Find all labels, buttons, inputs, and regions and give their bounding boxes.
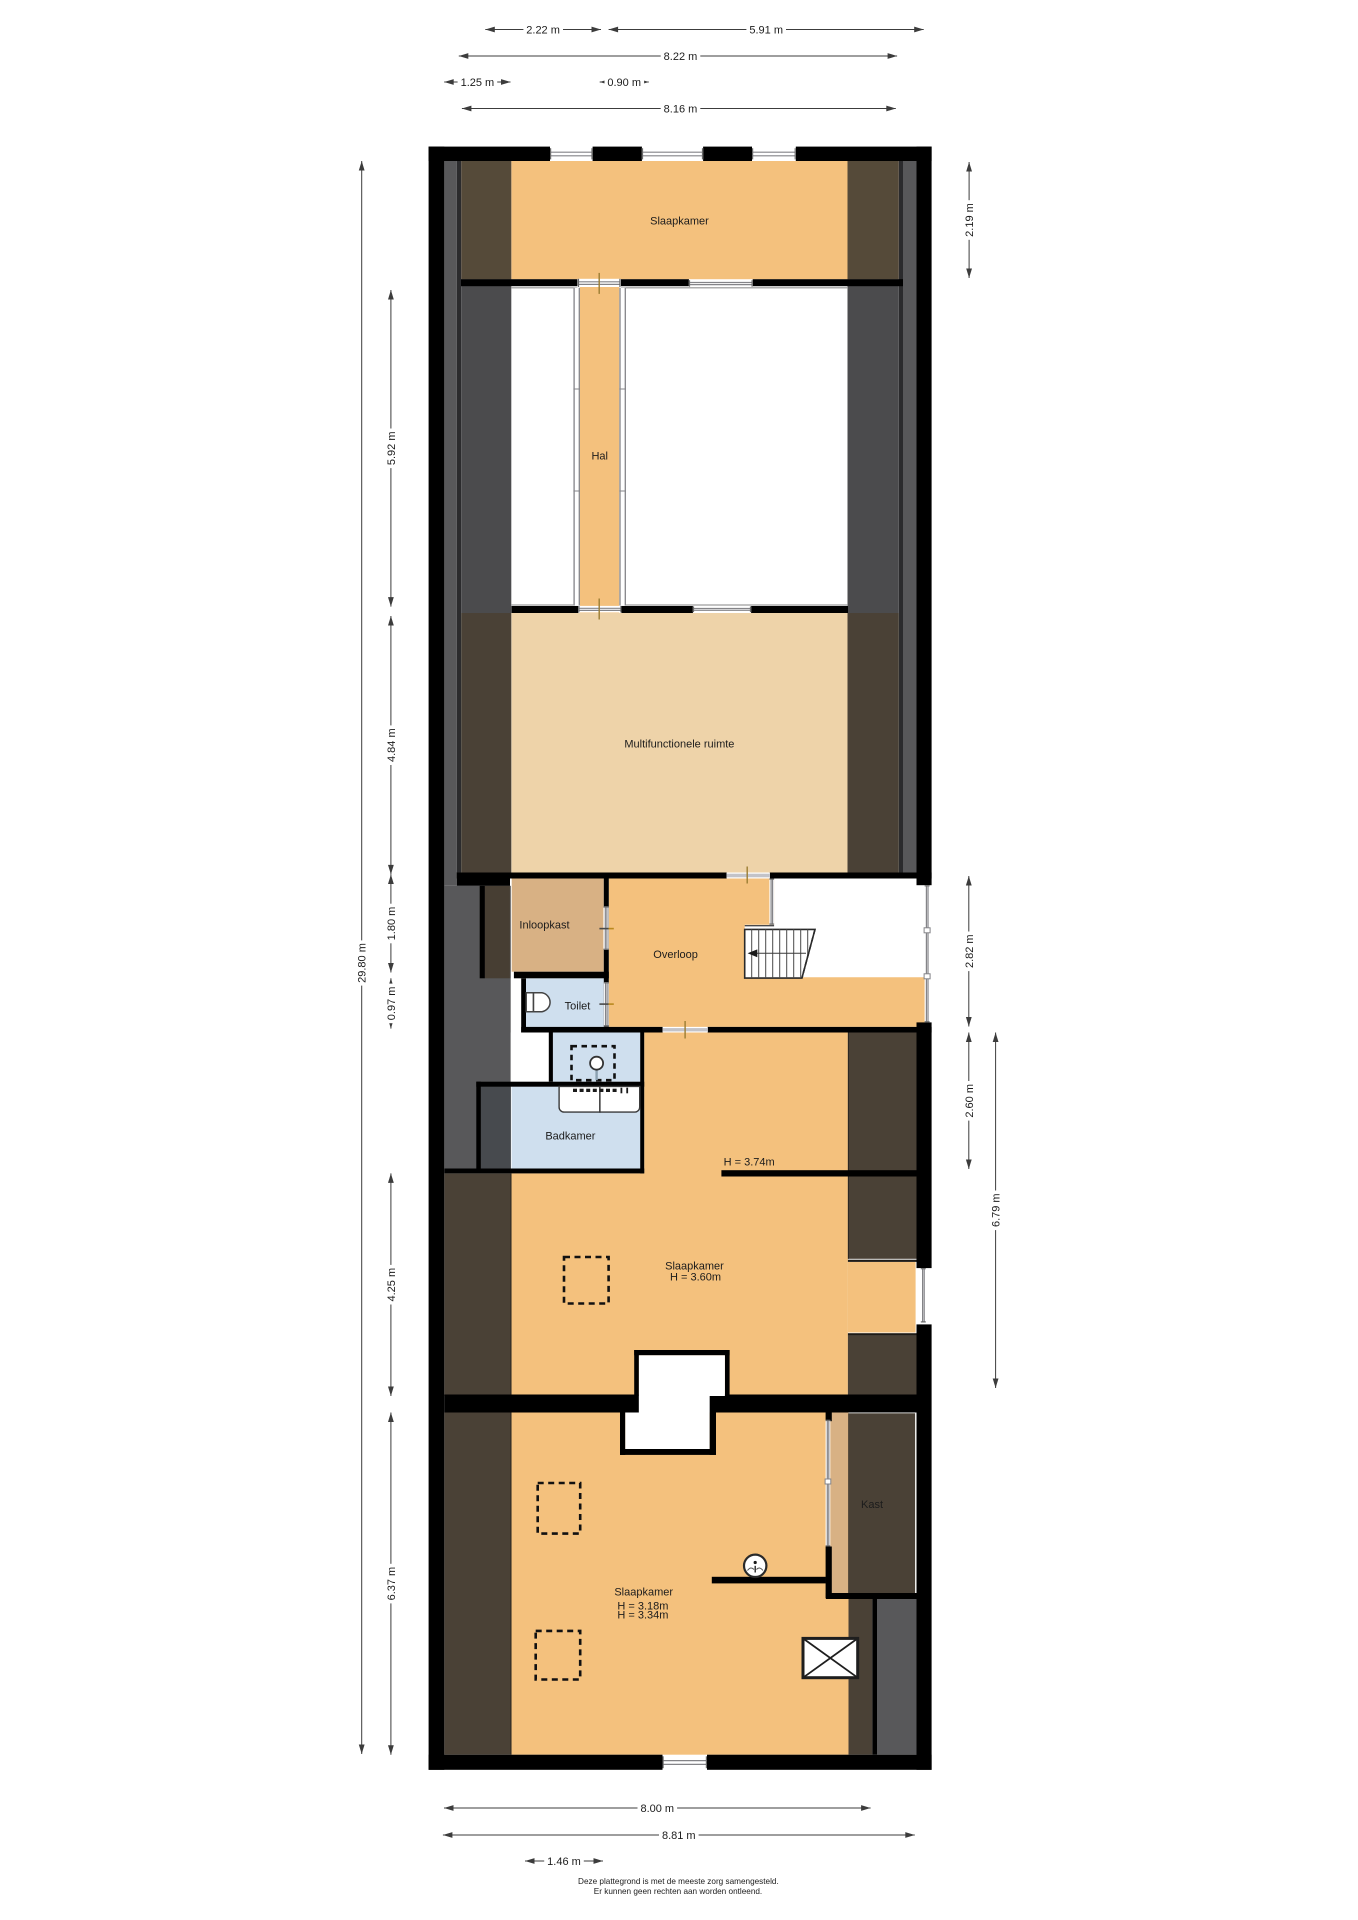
svg-text:0.97 m: 0.97 m <box>386 987 398 1021</box>
svg-text:2.22 m: 2.22 m <box>526 25 560 37</box>
svg-text:H = 3.34m: H = 3.34m <box>617 1610 668 1622</box>
svg-text:2.82 m: 2.82 m <box>964 934 976 968</box>
svg-text:1.46 m: 1.46 m <box>547 1856 581 1868</box>
svg-text:8.81 m: 8.81 m <box>662 1830 696 1842</box>
svg-text:0.90 m: 0.90 m <box>607 77 641 89</box>
svg-text:Inloopkast: Inloopkast <box>519 920 569 932</box>
svg-text:Er kunnen geen rechten aan wor: Er kunnen geen rechten aan worden ontlee… <box>594 1887 762 1896</box>
svg-text:Hal: Hal <box>591 451 608 463</box>
svg-text:Toilet: Toilet <box>565 1001 591 1013</box>
svg-text:2.19 m: 2.19 m <box>964 203 976 237</box>
svg-text:2.60 m: 2.60 m <box>964 1084 976 1118</box>
svg-text:4.25 m: 4.25 m <box>386 1268 398 1302</box>
svg-text:1.25 m: 1.25 m <box>461 77 495 89</box>
svg-text:H = 3.60m: H = 3.60m <box>670 1271 721 1283</box>
svg-text:8.16 m: 8.16 m <box>664 104 698 116</box>
svg-text:Multifunctionele ruimte: Multifunctionele ruimte <box>624 739 734 751</box>
svg-text:5.92 m: 5.92 m <box>386 431 398 465</box>
svg-text:6.79 m: 6.79 m <box>991 1193 1003 1227</box>
svg-text:Slaapkamer: Slaapkamer <box>650 216 709 228</box>
svg-text:Kast: Kast <box>861 1499 883 1511</box>
svg-text:4.84 m: 4.84 m <box>386 728 398 762</box>
svg-text:H = 3.74m: H = 3.74m <box>724 1157 775 1169</box>
svg-text:8.00 m: 8.00 m <box>640 1803 674 1815</box>
svg-text:Slaapkamer: Slaapkamer <box>614 1587 673 1599</box>
svg-text:Badkamer: Badkamer <box>545 1131 595 1143</box>
svg-text:29.80 m: 29.80 m <box>357 943 369 983</box>
svg-text:Overloop: Overloop <box>653 949 698 961</box>
svg-text:6.37 m: 6.37 m <box>386 1567 398 1601</box>
svg-text:Deze plattegrond is met de mee: Deze plattegrond is met de meeste zorg s… <box>578 1877 779 1886</box>
svg-text:1.80 m: 1.80 m <box>386 907 398 941</box>
svg-text:8.22 m: 8.22 m <box>664 51 698 63</box>
svg-text:5.91 m: 5.91 m <box>749 25 783 37</box>
